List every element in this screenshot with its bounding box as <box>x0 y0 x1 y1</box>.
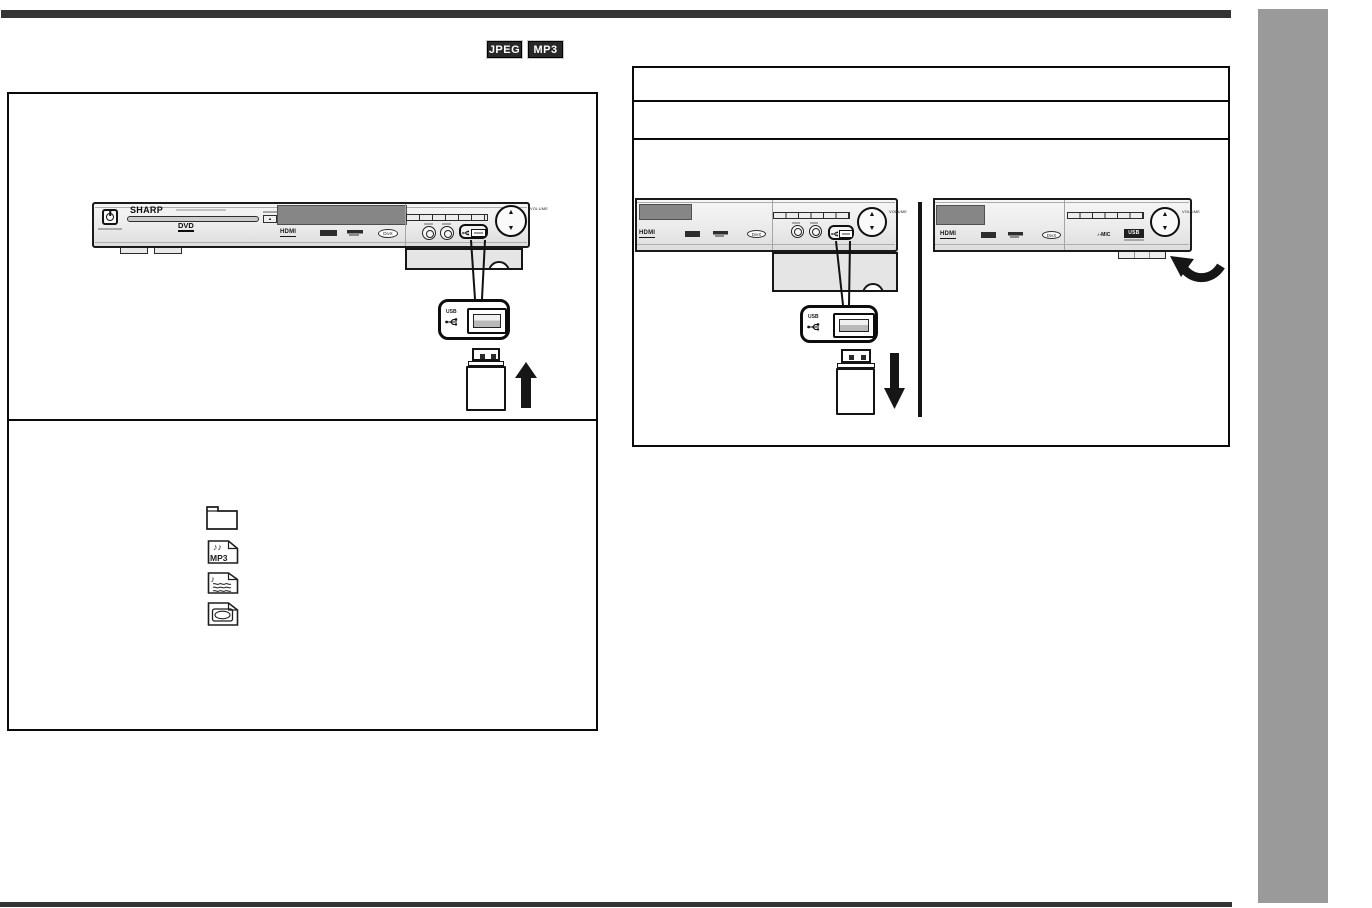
insert-down-arrow <box>884 353 905 409</box>
knob-icon <box>791 225 804 238</box>
usb-port-highlight <box>459 224 488 239</box>
usb-port <box>471 229 486 237</box>
knob-smalltext <box>810 222 818 224</box>
dolby-digital-logo <box>981 232 996 238</box>
open-cover-flap <box>772 252 898 292</box>
mp3-format-badge: MP3 <box>528 41 563 58</box>
dts-logo <box>1008 232 1023 238</box>
usb-port-highlight <box>828 225 854 240</box>
usb-drive-body <box>466 366 506 411</box>
brand-logo: SHARP <box>130 206 163 215</box>
usb-port-drawing <box>467 308 507 334</box>
function-buttons-row <box>773 212 850 219</box>
plug-hole <box>491 354 496 359</box>
right-panel-row-divider-2 <box>634 138 1228 140</box>
audio-file-icon: ♪ <box>206 571 240 595</box>
page-edge-tab <box>1258 9 1328 903</box>
jpeg-format-badge: JPEG <box>487 41 522 58</box>
dvd-logo: DVD <box>178 222 194 232</box>
hdmi-logo: HDMI <box>639 230 655 238</box>
front-panel-illustration-closed: HDMI DivX ♪-MIC USB ▲ ▼ VOLUME <box>933 198 1226 290</box>
left-panel-divider <box>9 419 596 421</box>
usb-callout-label: USB <box>808 314 819 320</box>
divx-logo: DivX <box>747 230 766 238</box>
dts-logo <box>713 231 728 237</box>
music-note-glyph: ♪ <box>211 574 216 584</box>
usb-port-contact <box>473 314 501 328</box>
usb-callout: USB <box>800 305 878 343</box>
section-separator <box>1064 200 1065 250</box>
volume-up-icon: ▲ <box>1152 211 1178 219</box>
usb-trident-icon <box>462 229 470 237</box>
display-window <box>277 205 407 225</box>
power-smalltext <box>98 228 122 230</box>
divx-logo: DivX <box>1042 231 1061 239</box>
usb-callout: USB <box>438 299 510 340</box>
port-contact <box>474 232 483 234</box>
music-notes-glyph: ♪♪ <box>213 542 222 552</box>
power-glyph <box>106 213 114 221</box>
bottom-rule <box>0 902 1232 907</box>
mp3-label: MP3 <box>210 553 228 563</box>
base-line <box>637 244 895 245</box>
mp3-file-icon: ♪♪ MP3 <box>206 539 240 565</box>
hdmi-logo: HDMI <box>940 231 956 239</box>
knob-smalltext <box>792 222 800 224</box>
usb-port <box>839 230 853 238</box>
flap-notch <box>488 261 510 270</box>
flap-notch <box>862 283 884 292</box>
front-panel-illustration-full: SHARP ▲ DVD HDMI DivX ▲ ▼ VOLUME <box>92 202 547 414</box>
manual-page: JPEG MP3 SHARP ▲ DVD HDMI DivX <box>0 0 1372 908</box>
bevel-line <box>637 202 895 203</box>
base-line <box>95 242 527 243</box>
base-line <box>935 244 1189 245</box>
volume-up-icon: ▲ <box>497 209 525 217</box>
usb-trident-icon <box>807 322 821 332</box>
right-panel-row-divider-1 <box>634 100 1228 102</box>
usb-trident-icon <box>445 317 459 327</box>
dolby-digital-logo <box>685 231 700 237</box>
divx-logo: DivX <box>378 229 398 238</box>
section-separator <box>772 200 773 250</box>
folder-icon <box>205 502 239 532</box>
section-separator <box>405 204 406 246</box>
unit-foot <box>154 248 182 254</box>
close-cover-curved-arrow <box>1169 253 1225 287</box>
mic-jack-label: ♪-MIC <box>1097 232 1110 238</box>
function-buttons-row <box>1067 212 1144 219</box>
volume-down-icon: ▼ <box>497 225 525 233</box>
volume-down-icon: ▼ <box>859 225 885 233</box>
display-window <box>936 205 985 225</box>
closed-cover-tray <box>1118 252 1166 259</box>
volume-up-icon: ▲ <box>859 211 885 219</box>
eject-button-icon: ▲ <box>263 215 277 223</box>
insert-up-arrow <box>515 362 537 408</box>
usb-smalltext <box>1124 239 1144 241</box>
plug-hole <box>861 355 866 360</box>
usb-port-drawing <box>833 313 875 338</box>
hdmi-logo: HDMI <box>280 229 296 237</box>
function-buttons-row <box>406 214 488 221</box>
power-button-icon <box>102 209 118 225</box>
display-window <box>639 204 692 220</box>
image-file-icon <box>206 601 240 627</box>
dts-logo <box>347 230 363 236</box>
open-cover-flap <box>405 248 523 270</box>
knob-icon <box>809 225 822 238</box>
unit-foot <box>120 248 148 254</box>
volume-label: VOLUME <box>1182 209 1200 214</box>
volume-label: VOLUME <box>530 206 548 211</box>
usb-trident-icon <box>831 230 839 238</box>
usb-plug <box>841 349 871 363</box>
usb-plug <box>472 348 500 361</box>
usb-cover-badge: USB <box>1124 229 1144 238</box>
usb-port-contact <box>839 319 869 332</box>
top-rule <box>1 10 1231 18</box>
volume-label: VOLUME <box>889 209 907 214</box>
volume-dial: ▲ ▼ <box>857 207 887 237</box>
knob-smalltext <box>424 223 433 225</box>
knob-smalltext <box>442 223 451 225</box>
volume-down-icon: ▼ <box>1152 225 1178 233</box>
front-panel-illustration-open: HDMI DivX ▲ ▼ VOLUME <box>635 198 920 418</box>
usb-callout-label: USB <box>446 309 457 315</box>
eject-smalltext <box>263 211 277 213</box>
plug-hole <box>480 354 485 359</box>
bevel-line <box>935 202 1189 203</box>
knob-icon <box>422 226 436 240</box>
dolby-digital-logo <box>320 230 337 236</box>
port-contact <box>842 233 850 235</box>
plug-hole <box>849 355 854 360</box>
volume-dial: ▲ ▼ <box>495 205 527 237</box>
usb-drive-body <box>836 368 875 415</box>
volume-dial: ▲ ▼ <box>1150 207 1180 237</box>
model-smalltext <box>176 209 226 211</box>
knob-icon <box>440 226 454 240</box>
